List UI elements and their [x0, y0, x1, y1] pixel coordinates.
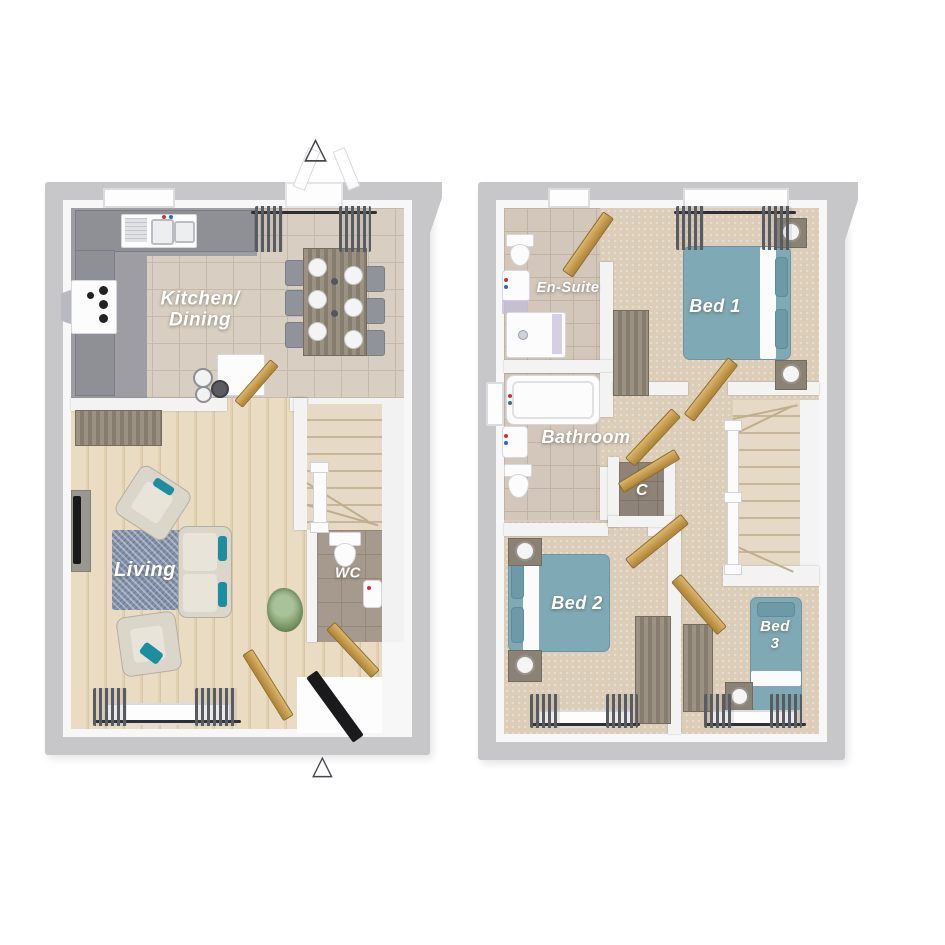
plate — [308, 258, 327, 277]
ensuite-bathroom-wall — [504, 360, 613, 373]
tap-cold — [508, 401, 512, 405]
curtains — [339, 206, 371, 252]
shower-glass — [552, 314, 562, 354]
room-label-wc: WC — [335, 566, 361, 583]
hob-burner — [99, 286, 108, 295]
shower-drain — [518, 330, 528, 340]
bedside-lamp — [515, 541, 535, 561]
room-label-cupboard: C — [636, 482, 648, 500]
stair-newel-post — [724, 564, 742, 575]
wc-basin — [363, 580, 382, 608]
stair-side-wall — [800, 400, 819, 574]
curtains — [770, 694, 802, 728]
curtains — [762, 206, 792, 250]
glass — [331, 310, 338, 317]
kitchen-jar — [193, 368, 213, 388]
room-label-bed1: Bed 1 — [689, 296, 741, 316]
stair-banister — [313, 468, 327, 526]
room-label-bed2: Bed 2 — [551, 593, 603, 613]
tap-cold — [504, 285, 508, 289]
curtains — [606, 694, 638, 728]
bed-pillow — [775, 257, 788, 297]
tap-cold — [504, 441, 508, 445]
bed-sheet — [760, 247, 776, 359]
ensuite-window — [548, 188, 590, 208]
wardrobe — [613, 310, 649, 396]
plate — [308, 322, 327, 341]
bedside-lamp — [781, 364, 801, 384]
curtains — [255, 206, 283, 252]
dining-chair — [365, 298, 385, 324]
hob-burner — [99, 314, 108, 323]
armchair — [115, 610, 183, 678]
sink-drainer — [125, 218, 147, 242]
stair-newel-post — [310, 522, 329, 533]
curtains — [530, 694, 560, 728]
stair-newel-post — [310, 462, 329, 473]
bed-pillow — [775, 309, 788, 349]
room-label-bathroom: Bathroom — [542, 427, 631, 447]
plate — [344, 266, 363, 285]
dining-chair — [285, 322, 305, 348]
bed-sheet — [751, 671, 801, 686]
room-label-ensuite: En-Suite — [537, 280, 600, 296]
room-label-kitchen-dining: Kitchen/ Dining — [161, 289, 240, 332]
kitchen-jar — [195, 386, 212, 403]
sink-bowl — [174, 221, 195, 243]
floorplan-canvas: △ △ — [0, 0, 945, 945]
sink-bowl — [151, 219, 174, 245]
bed1-window — [683, 188, 789, 208]
living-stairs-wall — [294, 398, 307, 530]
wardrobe — [635, 616, 671, 724]
hob-burner — [87, 292, 94, 299]
sofa — [178, 526, 232, 618]
first-floor-plan: En-Suite Bed 1 Bathroom C Bed 2 Bed 3 — [478, 182, 845, 760]
wc-wall — [307, 530, 317, 642]
cooker — [71, 280, 117, 334]
bath — [506, 375, 600, 425]
tap-hot — [367, 586, 371, 590]
curtains — [195, 688, 237, 726]
sofa-cushion — [218, 536, 227, 561]
ground-floor-plan: Kitchen/ Dining Living WC — [45, 182, 430, 755]
tap-cold — [169, 215, 173, 219]
dining-chair — [365, 330, 385, 356]
stair-newel-post — [724, 492, 742, 503]
tap-hot — [504, 278, 508, 282]
bath-tub — [512, 381, 594, 419]
glass — [331, 278, 338, 285]
entry-arrow-icon-top: △ — [304, 134, 327, 164]
sideboard — [75, 410, 162, 446]
hob-burner — [99, 300, 108, 309]
curtains — [704, 694, 734, 728]
bathroom-wall — [600, 373, 613, 417]
tap-hot — [508, 394, 512, 398]
sofa-cushion — [218, 582, 227, 607]
stair-newel-post — [724, 420, 742, 431]
plate — [344, 298, 363, 317]
curtains — [93, 688, 127, 726]
kitchen-pot — [211, 380, 229, 398]
bathroom-window — [486, 382, 504, 426]
bed-pillow — [511, 563, 524, 599]
dining-chair — [365, 266, 385, 292]
plant — [267, 588, 303, 632]
bed-pillow — [511, 607, 524, 643]
plate — [308, 290, 327, 309]
bedside-lamp — [515, 655, 535, 675]
tv — [73, 496, 81, 564]
room-label-living: Living — [114, 559, 176, 581]
room-label-bed3: Bed 3 — [760, 619, 790, 653]
sofa-seat — [183, 574, 217, 612]
bed-pillow — [757, 602, 795, 617]
ensuite-wall — [600, 262, 613, 373]
tap-hot — [162, 215, 166, 219]
plate — [344, 330, 363, 349]
entry-arrow-icon-bottom: △ — [312, 752, 333, 779]
tap-hot — [504, 434, 508, 438]
dining-chair — [285, 290, 305, 316]
curtains — [676, 206, 704, 250]
bed-sheet — [523, 555, 539, 651]
bed2-wall — [504, 523, 608, 536]
sofa-seat — [183, 533, 217, 571]
kitchen-window — [103, 188, 175, 208]
dining-chair — [285, 260, 305, 286]
